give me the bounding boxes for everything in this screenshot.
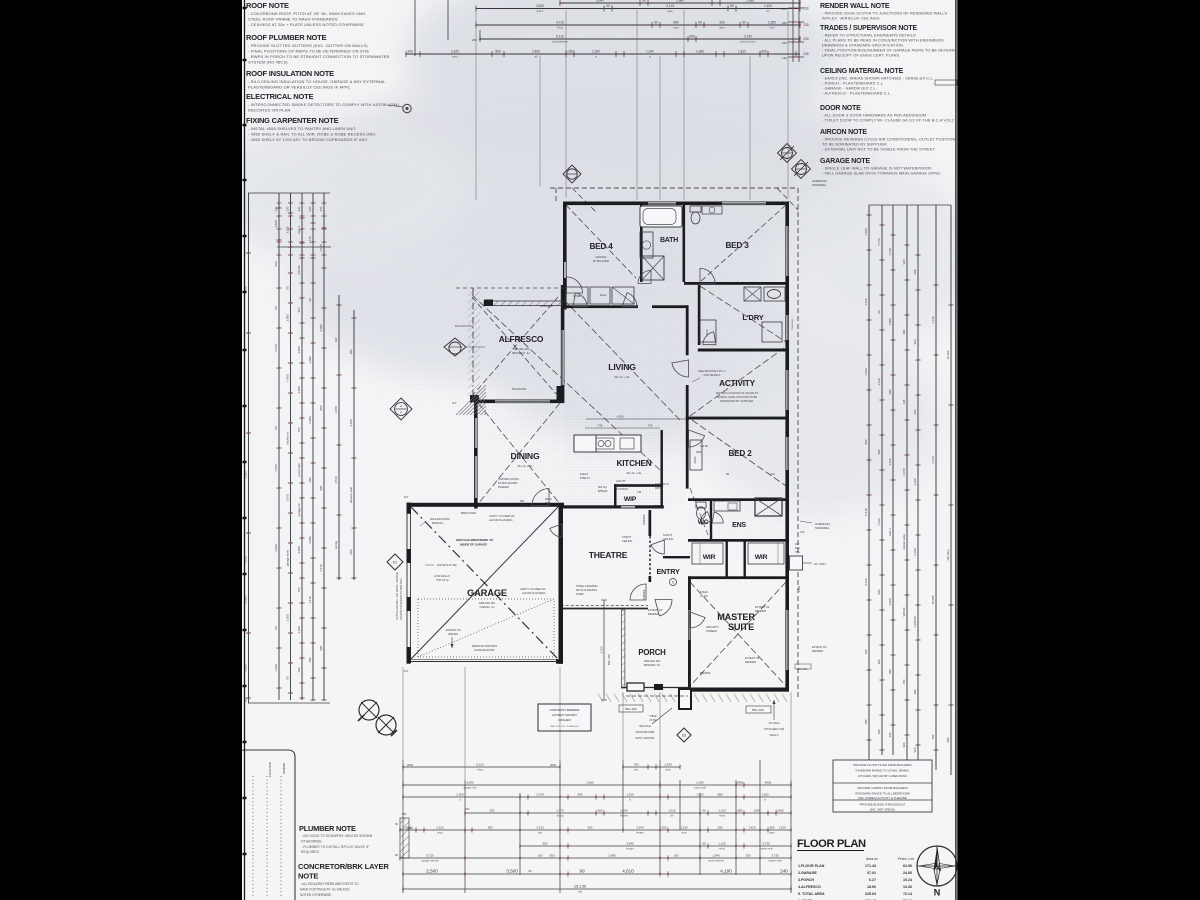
svg-text:3,780: 3,780 bbox=[334, 406, 338, 414]
svg-text:936 HIGH: 936 HIGH bbox=[639, 724, 651, 728]
svg-text:(490): (490) bbox=[765, 781, 772, 785]
svg-text:theatre: theatre bbox=[636, 831, 644, 834]
svg-text:960: 960 bbox=[864, 439, 868, 444]
svg-text:- PROVIDE SLOTTED GUTTERS (EXC: - PROVIDE SLOTTED GUTTERS (EXC. GUTTER O… bbox=[248, 43, 368, 48]
svg-text:90: 90 bbox=[702, 809, 706, 813]
svg-text:6,000: 6,000 bbox=[466, 781, 474, 785]
svg-text:w: w bbox=[629, 798, 631, 801]
svg-text:140: 140 bbox=[334, 337, 338, 342]
svg-text:alfresco wall: alfresco wall bbox=[349, 487, 353, 503]
svg-text:T-BAR: T-BAR bbox=[649, 715, 656, 718]
svg-text:1,600: 1,600 bbox=[297, 626, 301, 634]
svg-text:MASTER: MASTER bbox=[717, 612, 755, 622]
svg-text:1,240: 1,240 bbox=[646, 50, 654, 54]
svg-text:- TOILET DOOR TO COMPLY W/- CL: - TOILET DOOR TO COMPLY W/- CLAUSE G4.1/… bbox=[822, 118, 954, 122]
svg-text:230: 230 bbox=[803, 7, 809, 11]
svg-text:600: 600 bbox=[308, 657, 312, 662]
svg-text:PLASTERBOARD OR VERSILUX CEILI: PLASTERBOARD OR VERSILUX CEILINGS IF APP… bbox=[248, 84, 351, 89]
svg-text:REMOTE CONTROL: REMOTE CONTROL bbox=[472, 644, 498, 648]
svg-text:910: 910 bbox=[913, 339, 917, 344]
svg-text:D3: D3 bbox=[682, 734, 686, 738]
svg-text:- R4.0 CEILING INSULATION TO H: - R4.0 CEILING INSULATION TO HOUSE, GARA… bbox=[248, 79, 386, 84]
svg-text:230: 230 bbox=[285, 206, 289, 211]
svg-text:WITH CAPPING: WITH CAPPING bbox=[635, 736, 654, 740]
svg-text:- ALL PLANS TO BE READ IN CONJ: - ALL PLANS TO BE READ IN CONJUNCTION WI… bbox=[822, 38, 944, 42]
svg-text:EXTENT OF: EXTENT OF bbox=[446, 628, 461, 632]
svg-text:HAVE FOOTINGS AT -0c UNLESS: HAVE FOOTINGS AT -0c UNLESS bbox=[300, 887, 349, 891]
svg-text:15,130: 15,130 bbox=[574, 884, 587, 889]
svg-text:4,150: 4,150 bbox=[902, 468, 906, 476]
svg-text:- SINGLE LEAF WALL TO GARAGE I: - SINGLE LEAF WALL TO GARAGE IS NOT WATE… bbox=[822, 166, 932, 170]
svg-text:600: 600 bbox=[308, 477, 312, 482]
svg-text:WIR: WIR bbox=[755, 554, 768, 561]
svg-text:wing: wing bbox=[437, 831, 443, 834]
svg-text:90: 90 bbox=[606, 4, 610, 8]
svg-text:2,680: 2,680 bbox=[608, 854, 616, 858]
svg-text:(90): (90) bbox=[549, 854, 554, 858]
svg-text:5,710: 5,710 bbox=[426, 854, 434, 858]
svg-text:ELEVATION: ELEVATION bbox=[268, 762, 272, 777]
svg-text:15,000: 15,000 bbox=[931, 595, 935, 604]
svg-text:PROVIDE FLOOR TILING FROM BUIL: PROVIDE FLOOR TILING FROM BUILDERS bbox=[853, 763, 911, 767]
svg-text:P.BOARD LINING: P.BOARD LINING bbox=[498, 477, 519, 481]
svg-text:A: A bbox=[400, 404, 402, 408]
svg-text:37.01: 37.01 bbox=[867, 871, 876, 875]
svg-text:theatre: theatre bbox=[626, 847, 634, 850]
svg-text:3,640: 3,640 bbox=[596, 0, 604, 3]
svg-text:pier: pier bbox=[538, 831, 542, 834]
svg-text:230: 230 bbox=[308, 206, 312, 211]
svg-text:master suite: master suite bbox=[768, 859, 782, 862]
svg-text:230: 230 bbox=[782, 7, 787, 11]
svg-text:(490): (490) bbox=[550, 763, 556, 767]
svg-text:NOTED OTHERWISE.: NOTED OTHERWISE. bbox=[300, 893, 332, 897]
svg-text:3,630: 3,630 bbox=[536, 4, 544, 8]
svg-text:230: 230 bbox=[782, 21, 787, 25]
svg-text:510: 510 bbox=[274, 261, 278, 266]
svg-text:CONTRAST RENDER: CONTRAST RENDER bbox=[550, 708, 581, 712]
svg-text:F/DW 35c H.: F/DW 35c H. bbox=[655, 483, 670, 486]
svg-text:600: 600 bbox=[297, 667, 301, 672]
svg-text:- ALFRESCO - PLASTERBOARD C.L.: - ALFRESCO - PLASTERBOARD C.L. bbox=[822, 91, 891, 95]
svg-text:PRELAY: PRELAY bbox=[580, 476, 590, 480]
svg-text:ALCOR FLASHING: ALCOR FLASHING bbox=[489, 518, 512, 522]
svg-text:(490): (490) bbox=[737, 781, 744, 785]
svg-text:D.P: D.P bbox=[404, 669, 409, 673]
svg-text:980: 980 bbox=[718, 793, 723, 797]
svg-text:1,770: 1,770 bbox=[877, 238, 881, 246]
svg-text:900: 900 bbox=[902, 329, 906, 334]
svg-text:STEEL FRAMING: STEEL FRAMING bbox=[576, 584, 598, 588]
svg-text:STEEL ROOF FRAME TO NASH STAND: STEEL ROOF FRAME TO NASH STANDARDS bbox=[248, 16, 338, 21]
svg-text:3,000: 3,000 bbox=[308, 536, 312, 544]
svg-text:alf: alf bbox=[535, 55, 538, 59]
svg-text:1,940: 1,940 bbox=[712, 854, 720, 858]
svg-text:MANUAL: MANUAL bbox=[432, 521, 444, 525]
svg-text:730: 730 bbox=[634, 763, 639, 767]
svg-text:6,480: 6,480 bbox=[285, 374, 289, 382]
svg-text:5,810: 5,810 bbox=[274, 344, 278, 352]
svg-text:100u DAV: 100u DAV bbox=[797, 668, 808, 671]
svg-text:1,410: 1,410 bbox=[877, 378, 881, 386]
svg-text:730: 730 bbox=[598, 424, 603, 428]
svg-text:B/PAVED -5c: B/PAVED -5c bbox=[644, 663, 661, 667]
svg-text:- FALL GARAGE SLAB 20mm TOWARD: - FALL GARAGE SLAB 20mm TOWARDS MAIN GAR… bbox=[822, 171, 940, 175]
svg-text:linen: linen bbox=[719, 26, 725, 30]
svg-text:CEILING MATERIAL NOTE: CEILING MATERIAL NOTE bbox=[820, 68, 904, 75]
svg-text:3,540: 3,540 bbox=[349, 419, 353, 427]
svg-text:1,000: 1,000 bbox=[285, 314, 289, 322]
svg-text:900 90: 900 90 bbox=[902, 607, 906, 616]
svg-text:w: w bbox=[649, 56, 651, 59]
svg-text:930: 930 bbox=[719, 21, 725, 25]
svg-text:SOFFIT: SOFFIT bbox=[622, 535, 632, 539]
svg-text:31c CL + PL: 31c CL + PL bbox=[614, 375, 630, 379]
svg-text:3,110: 3,110 bbox=[666, 4, 674, 8]
svg-text:90: 90 bbox=[395, 822, 398, 826]
svg-text:UPON RECEIPT OF ENGG CERT. PLA: UPON RECEIPT OF ENGG CERT. PLANS. bbox=[822, 53, 900, 57]
svg-text:3.1F: 3.1F bbox=[800, 531, 805, 534]
svg-text:garage o'all: garage o'all bbox=[464, 786, 477, 789]
svg-text:dining: dining bbox=[557, 814, 564, 817]
svg-text:RENDER: RENDER bbox=[648, 612, 659, 616]
svg-text:7,070: 7,070 bbox=[274, 464, 278, 472]
svg-text:90: 90 bbox=[274, 426, 278, 430]
svg-text:FRAS: FRAS bbox=[545, 498, 552, 501]
svg-text:4,520: 4,520 bbox=[617, 415, 624, 419]
svg-text:- RWPS IN PORCH TO BE STRAIGHT: - RWPS IN PORCH TO BE STRAIGHT CONNECTIO… bbox=[248, 54, 390, 59]
svg-text:ROBE: ROBE bbox=[694, 456, 697, 463]
svg-text:90: 90 bbox=[274, 306, 278, 310]
svg-text:240: 240 bbox=[780, 869, 788, 874]
svg-text:2540x1050: 2540x1050 bbox=[792, 318, 794, 330]
svg-text:fascia: fascia bbox=[600, 294, 607, 297]
svg-text:- 4550 SHELF & RAIL TO ALL WIR: - 4550 SHELF & RAIL TO ALL WIR, ROBE & R… bbox=[248, 131, 376, 136]
svg-text:890: 890 bbox=[495, 50, 501, 54]
svg-text:2,300: 2,300 bbox=[913, 548, 917, 556]
svg-text:3,560: 3,560 bbox=[334, 476, 338, 484]
svg-text:FEATURE PIER: FEATURE PIER bbox=[636, 730, 655, 734]
svg-text:FIXING CARPENTER NOTE: FIXING CARPENTER NOTE bbox=[246, 116, 339, 125]
svg-text:90: 90 bbox=[877, 310, 881, 314]
svg-text:ELECTRICAL NOTE: ELECTRICAL NOTE bbox=[246, 92, 313, 101]
svg-text:(594): (594) bbox=[696, 450, 702, 454]
svg-text:2,450: 2,450 bbox=[532, 50, 540, 54]
svg-text:AT 24c: AT 24c bbox=[700, 594, 709, 598]
svg-text:LIVING: LIVING bbox=[608, 362, 636, 372]
svg-text:1,810: 1,810 bbox=[738, 50, 746, 54]
svg-text:240: 240 bbox=[803, 52, 809, 56]
svg-text:activity (max.): activity (max.) bbox=[740, 40, 756, 44]
svg-text:390: 390 bbox=[902, 742, 906, 747]
svg-text:3,000: 3,000 bbox=[297, 546, 301, 554]
svg-text:200: 200 bbox=[662, 826, 667, 830]
svg-text:OPNG: OPNG bbox=[655, 487, 662, 490]
svg-text:- GARAGE - HARDIFLEX C.L.: - GARAGE - HARDIFLEX C.L. bbox=[822, 86, 877, 90]
svg-text:1,988: 1,988 bbox=[746, 0, 754, 3]
svg-text:OTHERWISE.: OTHERWISE. bbox=[301, 839, 323, 843]
svg-text:2,980: 2,980 bbox=[676, 0, 684, 3]
svg-text:- PROVIDE 20mm SCOTIA TO JUNCT: - PROVIDE 20mm SCOTIA TO JUNCTIONS OF RE… bbox=[822, 11, 948, 15]
svg-text:- COLORBOND ROOF, PITCH AT 25°: - COLORBOND ROOF, PITCH AT 25° W/- 580M … bbox=[248, 11, 365, 16]
svg-text:1,540: 1,540 bbox=[877, 518, 881, 526]
svg-text:100: 100 bbox=[913, 689, 917, 694]
svg-text:ALFRESCO: ALFRESCO bbox=[499, 334, 544, 344]
svg-text:24.66: 24.66 bbox=[903, 871, 912, 875]
svg-text:5,110: 5,110 bbox=[931, 456, 935, 463]
svg-text:140: 140 bbox=[782, 56, 787, 60]
svg-text:2,000: 2,000 bbox=[319, 324, 323, 332]
svg-text:APPROX LOCATION OF SOLAR PV: APPROX LOCATION OF SOLAR PV bbox=[716, 391, 759, 395]
svg-text:GRANO -1c: GRANO -1c bbox=[480, 605, 496, 609]
svg-text:porch o'all: porch o'all bbox=[694, 786, 706, 789]
svg-text:2,500: 2,500 bbox=[456, 793, 464, 797]
svg-text:3,730: 3,730 bbox=[771, 854, 779, 858]
svg-text:porch stall: porch stall bbox=[297, 463, 301, 477]
svg-text:1,730: 1,730 bbox=[888, 248, 892, 256]
svg-text:CEILING: CEILING bbox=[622, 539, 632, 543]
svg-text:wir: wir bbox=[670, 814, 673, 817]
svg-text:- PLUMBER TO INSTALL R/FLUX VA: - PLUMBER TO INSTALL R/FLUX VALVE IF bbox=[301, 845, 369, 849]
svg-text:D.P: D.P bbox=[404, 495, 409, 499]
svg-text:1,910: 1,910 bbox=[626, 793, 634, 797]
svg-text:DASHED: DASHED bbox=[558, 718, 571, 722]
svg-text:90: 90 bbox=[308, 298, 312, 302]
svg-text:90: 90 bbox=[529, 869, 532, 873]
svg-text:3,590: 3,590 bbox=[864, 228, 868, 236]
svg-text:390: 390 bbox=[407, 50, 413, 54]
svg-text:910: 910 bbox=[297, 307, 301, 312]
svg-text:SECURITY: SECURITY bbox=[706, 625, 719, 629]
svg-text:19,290: 19,290 bbox=[946, 350, 950, 359]
svg-text:BRICK PIER: BRICK PIER bbox=[461, 511, 476, 515]
svg-text:2,700: 2,700 bbox=[600, 646, 604, 653]
svg-text:4,150: 4,150 bbox=[888, 458, 892, 466]
svg-text:PW/3FSF: PW/3FSF bbox=[700, 672, 711, 675]
svg-text:BED 2: BED 2 bbox=[728, 449, 752, 458]
svg-text:WIR: WIR bbox=[703, 554, 716, 561]
svg-text:171.43: 171.43 bbox=[865, 864, 876, 868]
svg-text:DOOR NOTE: DOOR NOTE bbox=[820, 105, 861, 112]
svg-text:BATH: BATH bbox=[660, 237, 678, 244]
svg-text:3.PORCH: 3.PORCH bbox=[798, 878, 814, 882]
svg-text:900 SQ.: 900 SQ. bbox=[598, 486, 607, 489]
svg-text:EXTENT OF: EXTENT OF bbox=[648, 608, 663, 612]
svg-text:700: 700 bbox=[877, 729, 881, 734]
svg-text:- FINAL POSITIONS OF RWPS TO B: - FINAL POSITIONS OF RWPS TO BE DETERMIN… bbox=[248, 48, 370, 53]
svg-text:ATTACHED LOW: ATTACHED LOW bbox=[764, 727, 785, 731]
svg-text:2,390: 2,390 bbox=[913, 478, 917, 486]
svg-text:- 4550 SHELF AT 1700 AFL TO BR: - 4550 SHELF AT 1700 AFL TO BROOM CUPBOA… bbox=[248, 137, 368, 142]
svg-text:garage internal: garage internal bbox=[422, 859, 439, 862]
svg-text:PROVIDE CARPET FROM BUILDERS: PROVIDE CARPET FROM BUILDERS bbox=[857, 786, 907, 790]
svg-text:DRAWINGS & STANDARD SPECIFICAT: DRAWINGS & STANDARD SPECIFICATION. bbox=[822, 43, 904, 47]
svg-text:WIP: WIP bbox=[624, 496, 637, 503]
svg-text:PORCH: PORCH bbox=[638, 648, 666, 657]
svg-text:INDICATED ON PLAN: INDICATED ON PLAN bbox=[248, 107, 290, 112]
svg-text:CAVITY CLOSER W/-: CAVITY CLOSER W/- bbox=[520, 587, 546, 591]
svg-text:LINEN: LINEN bbox=[706, 329, 709, 336]
svg-text:WITH FLASHING: WITH FLASHING bbox=[576, 588, 597, 592]
svg-text:KITCHEN: KITCHEN bbox=[617, 459, 652, 468]
svg-text:o'all: o'all bbox=[578, 890, 583, 893]
svg-text:600: 600 bbox=[931, 734, 935, 739]
svg-text:bed 4: bed 4 bbox=[537, 9, 544, 13]
svg-text:EXTENT OF: EXTENT OF bbox=[745, 656, 760, 660]
svg-text:230: 230 bbox=[319, 206, 323, 211]
svg-text:230: 230 bbox=[472, 38, 477, 42]
svg-text:ACTIVITY: ACTIVITY bbox=[719, 379, 755, 388]
svg-text:PROVIDE BLINDS THROUGHOUT: PROVIDE BLINDS THROUGHOUT bbox=[860, 803, 906, 807]
svg-text:850+ DAV: 850+ DAV bbox=[625, 707, 637, 711]
svg-text:4,190: 4,190 bbox=[720, 869, 732, 874]
svg-text:SYSTEM (NO 45CS): SYSTEM (NO 45CS) bbox=[248, 59, 288, 64]
svg-text:600: 600 bbox=[946, 737, 950, 742]
svg-text:kitchen: kitchen bbox=[620, 814, 629, 817]
svg-text:3,340: 3,340 bbox=[636, 826, 644, 830]
svg-text:EXTENT OF: EXTENT OF bbox=[812, 645, 827, 649]
svg-text:2,500: 2,500 bbox=[426, 869, 438, 874]
svg-text:90: 90 bbox=[579, 869, 585, 874]
svg-text:wing: wing bbox=[452, 55, 458, 59]
svg-text:5. TOTAL AREA: 5. TOTAL AREA bbox=[798, 892, 825, 896]
svg-text:2ND FACE BRICKWORK TO: 2ND FACE BRICKWORK TO bbox=[456, 538, 494, 542]
svg-text:4.ALFRESCO: 4.ALFRESCO bbox=[798, 885, 821, 889]
svg-text:850: 850 bbox=[319, 405, 323, 410]
svg-text:- ALL DOOR & DOOR HARDWARE AS: - ALL DOOR & DOOR HARDWARE AS PER ADDEND… bbox=[822, 113, 926, 117]
svg-text:1,300 90: 1,300 90 bbox=[913, 616, 917, 628]
svg-text:190: 190 bbox=[674, 854, 679, 858]
svg-text:CORNICE: CORNICE bbox=[644, 514, 646, 525]
svg-text:290: 290 bbox=[488, 826, 493, 830]
svg-text:BY B/LAYER: BY B/LAYER bbox=[593, 259, 609, 263]
svg-text:TRADES / SUPERVISOR NOTE: TRADES / SUPERVISOR NOTE bbox=[820, 25, 918, 32]
svg-text:148: 148 bbox=[902, 399, 906, 404]
svg-text:900: 900 bbox=[578, 793, 583, 797]
svg-text:1,120: 1,120 bbox=[680, 826, 688, 830]
svg-text:25x24/1050: 25x24/1050 bbox=[512, 387, 527, 391]
svg-text:ROOF NOTE: ROOF NOTE bbox=[246, 1, 289, 10]
svg-text:WALLS: WALLS bbox=[770, 733, 779, 737]
svg-text:CONCRETOR/BRK LAYER: CONCRETOR/BRK LAYER bbox=[298, 862, 389, 871]
svg-text:900: 900 bbox=[588, 826, 593, 830]
svg-text:REC: REC bbox=[795, 547, 800, 550]
svg-text:GUTTER GW WALL. B/O DETAIL. PR: GUTTER GW WALL. B/O DETAIL. PROVIDE bbox=[396, 572, 399, 620]
svg-text:2,110: 2,110 bbox=[436, 826, 443, 830]
svg-text:NOTE: NOTE bbox=[298, 872, 318, 881]
svg-text:spring: spring bbox=[334, 541, 338, 549]
svg-text:1,120: 1,120 bbox=[718, 842, 726, 846]
svg-text:BWC: BWC bbox=[545, 502, 551, 505]
svg-text:2,860: 2,860 bbox=[888, 598, 892, 606]
svg-text:1,000: 1,000 bbox=[308, 356, 312, 364]
svg-text:3,730: 3,730 bbox=[762, 842, 770, 846]
svg-text:D1: D1 bbox=[393, 561, 397, 565]
svg-text:300: 300 bbox=[349, 349, 353, 354]
svg-text:850+ DAV: 850+ DAV bbox=[752, 708, 764, 712]
svg-text:bed 4: bed 4 bbox=[297, 226, 301, 234]
svg-text:3,280: 3,280 bbox=[285, 226, 289, 234]
svg-text:100 SHS POST: 100 SHS POST bbox=[455, 324, 474, 328]
svg-text:ELECT: ELECT bbox=[580, 472, 589, 476]
svg-text:4,610: 4,610 bbox=[622, 869, 634, 874]
svg-text:5,110: 5,110 bbox=[476, 763, 483, 767]
svg-text:90+180: 90+180 bbox=[616, 484, 625, 487]
svg-text:90: 90 bbox=[654, 21, 658, 25]
svg-text:4,000: 4,000 bbox=[274, 544, 278, 552]
svg-text:230: 230 bbox=[746, 854, 751, 858]
svg-text:1,410: 1,410 bbox=[308, 596, 312, 604]
svg-text:100: 100 bbox=[538, 854, 543, 858]
svg-text:PANELS. FINAL POSITION TO BE: PANELS. FINAL POSITION TO BE bbox=[717, 395, 758, 399]
svg-text:90: 90 bbox=[742, 21, 746, 25]
svg-text:230: 230 bbox=[274, 206, 278, 211]
svg-text:ENTRY: ENTRY bbox=[656, 567, 679, 576]
svg-text:1,088: 1,088 bbox=[888, 318, 892, 326]
svg-text:entry: entry bbox=[681, 831, 687, 834]
svg-text:225.63: 225.63 bbox=[865, 892, 876, 896]
svg-text:GARAGE DOOR: GARAGE DOOR bbox=[474, 648, 494, 652]
svg-text:DASHED: DASHED bbox=[498, 485, 509, 489]
svg-text:960: 960 bbox=[689, 35, 695, 39]
svg-text:230: 230 bbox=[490, 809, 495, 813]
svg-text:SCREEN: SCREEN bbox=[706, 629, 717, 633]
svg-text:STANDARD RANGE TO ALL BEDROOMS: STANDARD RANGE TO ALL BEDROOMS bbox=[855, 792, 910, 796]
svg-text:GARAGE: GARAGE bbox=[467, 587, 507, 598]
svg-text:pass: pass bbox=[667, 10, 673, 13]
svg-text:1,620: 1,620 bbox=[764, 4, 772, 8]
svg-text:6.27: 6.27 bbox=[869, 878, 876, 882]
svg-text:890: 890 bbox=[761, 50, 767, 54]
svg-text:1,080: 1,080 bbox=[696, 50, 704, 54]
svg-text:garage stl: garage stl bbox=[297, 503, 301, 516]
svg-text:3,970: 3,970 bbox=[285, 494, 289, 502]
svg-text:510 90: 510 90 bbox=[700, 444, 708, 448]
svg-text:31c CL + PL: 31c CL + PL bbox=[626, 471, 642, 475]
svg-text:HARDIFLEX: HARDIFLEX bbox=[812, 179, 827, 183]
svg-text:ROOF PLUMBER NOTE: ROOF PLUMBER NOTE bbox=[246, 33, 327, 42]
svg-text:90: 90 bbox=[395, 853, 398, 857]
svg-text:Perim. L/m: Perim. L/m bbox=[898, 857, 915, 861]
svg-text:LOW WALLS: LOW WALLS bbox=[434, 574, 450, 578]
svg-text:- EXTERNAL UNIT NOT TO BE VISI: - EXTERNAL UNIT NOT TO BE VISIBLE FROM T… bbox=[822, 147, 936, 151]
svg-text:10.24: 10.24 bbox=[903, 878, 912, 882]
svg-text:garage intrnl: garage intrnl bbox=[285, 550, 289, 566]
svg-text:ROBE: ROBE bbox=[573, 294, 581, 298]
svg-text:KITCHEN, WIP, ENTRY & BED PASS: KITCHEN, WIP, ENTRY & BED PASS bbox=[858, 774, 907, 778]
svg-text:kitchen liv: kitchen liv bbox=[285, 431, 289, 444]
svg-text:1.FLOOR PLAN: 1.FLOOR PLAN bbox=[798, 864, 825, 868]
svg-text:HARDIFLEX: HARDIFLEX bbox=[815, 522, 830, 526]
svg-text:GARAGE NOTE: GARAGE NOTE bbox=[820, 158, 870, 165]
svg-text:OVER: OVER bbox=[576, 592, 584, 596]
svg-text:EXTENT SHOWN: EXTENT SHOWN bbox=[552, 713, 576, 717]
svg-text:master suite: master suite bbox=[902, 534, 906, 550]
svg-text:- PROVIDE REVERSE CYCLE AIR CO: - PROVIDE REVERSE CYCLE AIR CONDITIONING… bbox=[822, 137, 955, 141]
svg-text:pier: pier bbox=[634, 768, 638, 771]
svg-text:350: 350 bbox=[902, 679, 906, 684]
svg-text:FLOOR PLAN: FLOOR PLAN bbox=[797, 838, 866, 850]
svg-text:230: 230 bbox=[782, 41, 787, 45]
svg-text:- PORCH - PLASTERBOARD C.L.: - PORCH - PLASTERBOARD C.L. bbox=[822, 81, 884, 85]
svg-text:INSIDE OF GARAGE: INSIDE OF GARAGE bbox=[460, 543, 487, 547]
svg-text:220: 220 bbox=[888, 732, 892, 737]
svg-text:905: 905 bbox=[319, 645, 323, 650]
svg-text:SEE SECTION A PG. 2: SEE SECTION A PG. 2 bbox=[699, 369, 727, 373]
svg-text:2,400: 2,400 bbox=[776, 809, 784, 813]
svg-text:master suite: master suite bbox=[759, 847, 773, 850]
svg-text:RENDER: RENDER bbox=[755, 609, 766, 613]
